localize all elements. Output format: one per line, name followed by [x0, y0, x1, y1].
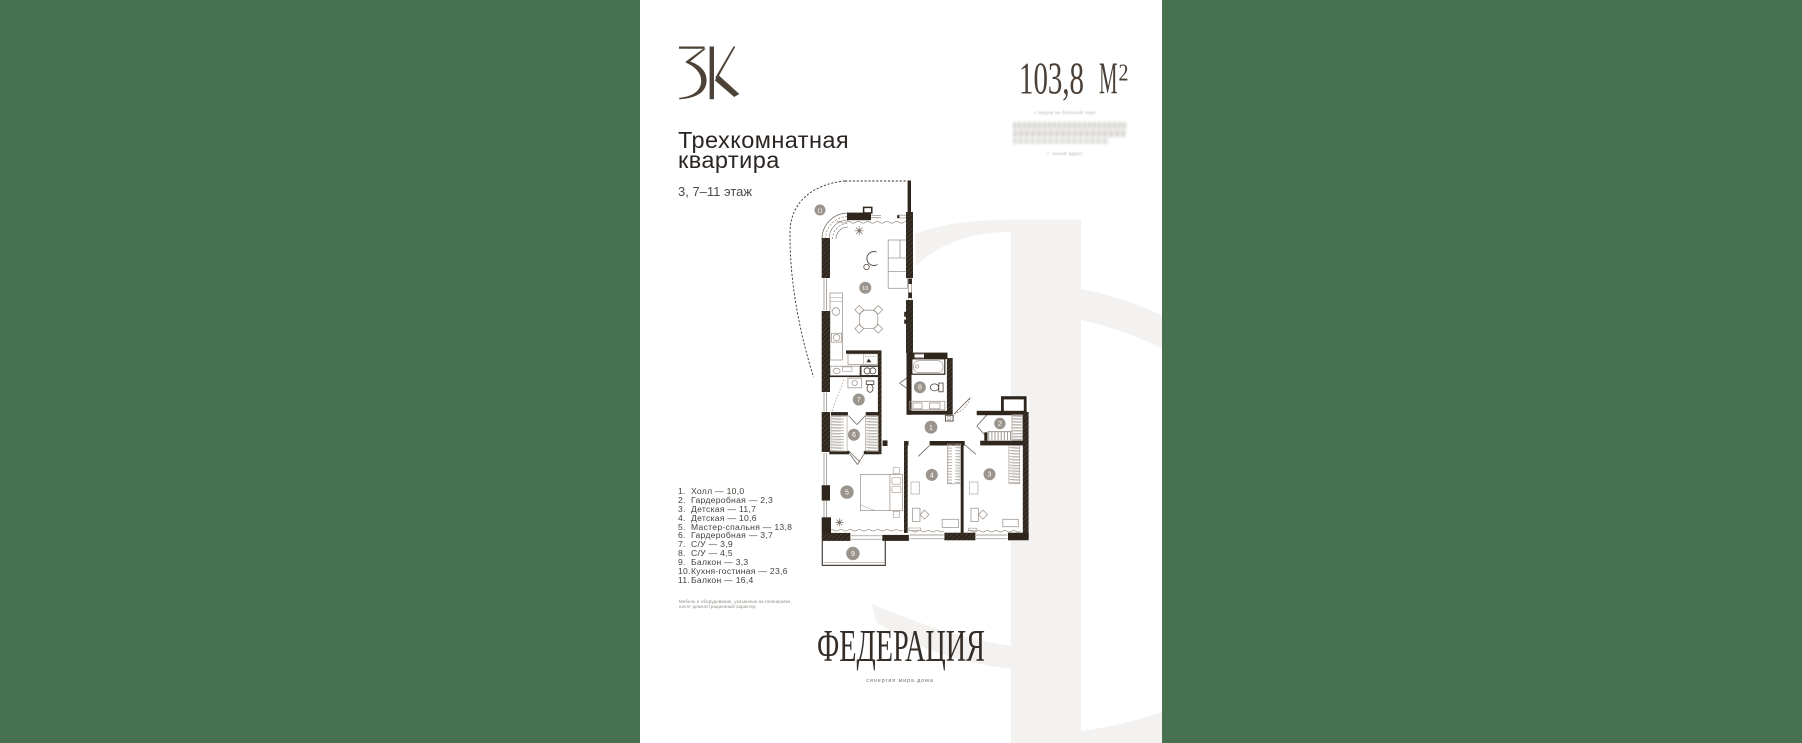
svg-text:3: 3	[988, 472, 992, 479]
svg-text:2: 2	[1119, 60, 1129, 86]
svg-text:11: 11	[817, 208, 823, 214]
svg-text:8: 8	[918, 385, 922, 392]
svg-text:ФЕДЕРАЦИЯ: ФЕДЕРАЦИЯ	[817, 625, 985, 671]
svg-text:2: 2	[998, 421, 1002, 428]
svg-text:5: 5	[845, 490, 849, 497]
svg-text:103,8: 103,8	[1019, 53, 1084, 103]
svg-text:9: 9	[851, 551, 855, 558]
svg-text:10: 10	[862, 286, 868, 292]
svg-text:6: 6	[852, 432, 856, 439]
svg-text:7: 7	[857, 397, 861, 404]
svg-text:1: 1	[929, 425, 933, 432]
svg-text:М: М	[1099, 53, 1118, 103]
svg-text:4: 4	[930, 472, 934, 479]
